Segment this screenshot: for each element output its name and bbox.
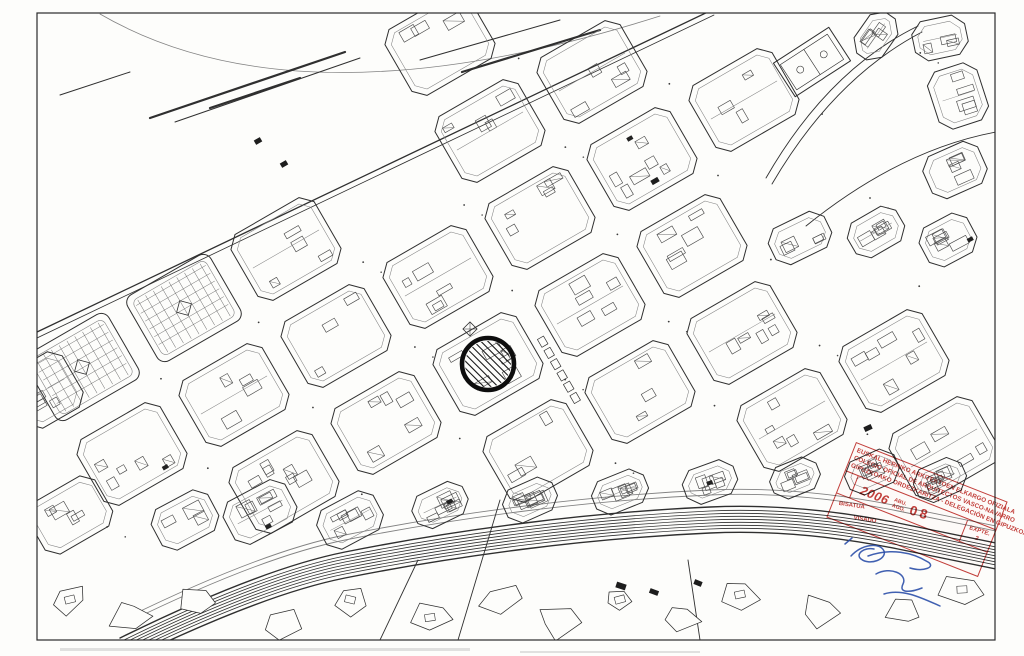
stamp-visa-spanish: VISADO <box>853 516 877 525</box>
stamp-day: 08 <box>908 503 933 524</box>
stamp-visa-basque: BISATUA <box>838 501 865 511</box>
stamp-months: ABU. AGO. <box>891 497 908 514</box>
city-plan-drawing <box>0 0 1024 656</box>
scanned-map-page: EUSKAL HERRIKO ARKITEKTOEN ELKARGO OFIZI… <box>0 0 1024 656</box>
stamp-file-number: 2 <box>973 535 979 543</box>
